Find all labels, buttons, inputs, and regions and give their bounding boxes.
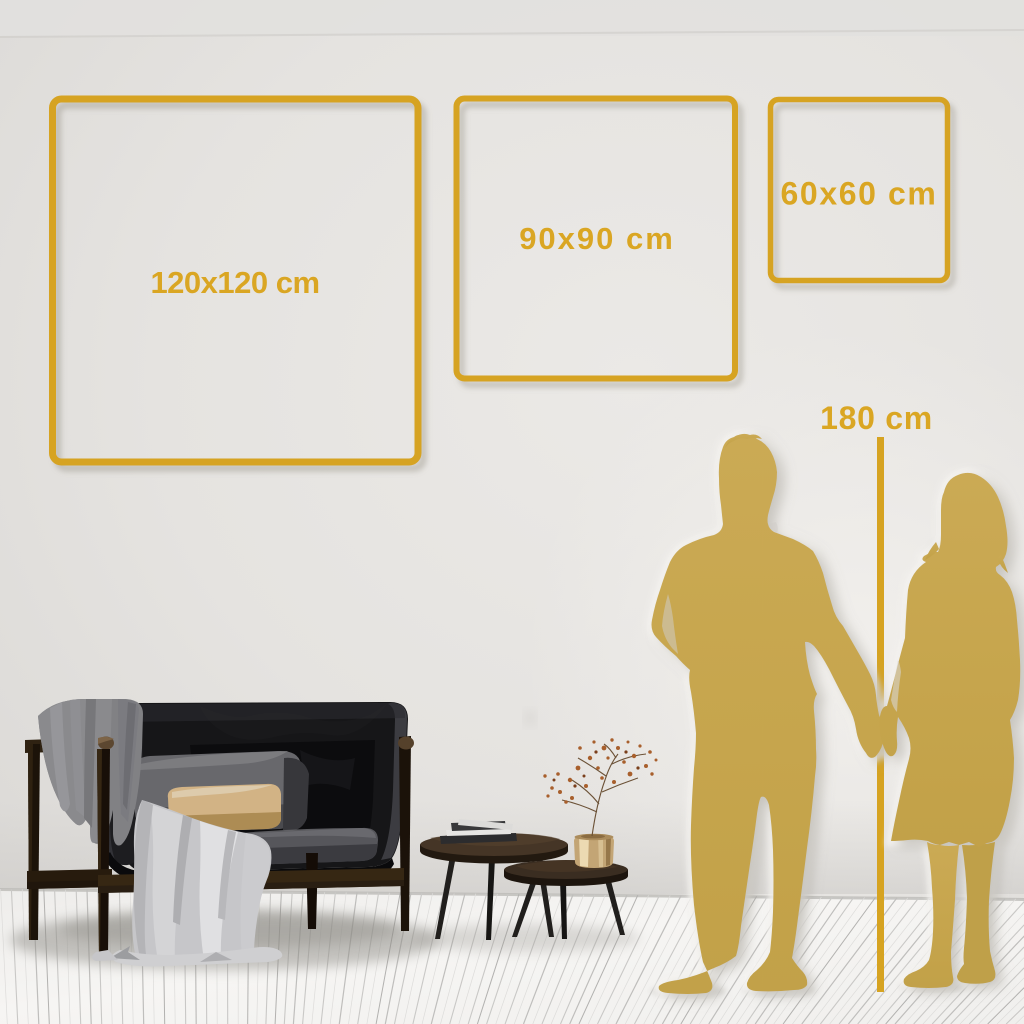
svg-text:90x90 cm: 90x90 cm	[519, 221, 675, 256]
svg-text:120x120 cm: 120x120 cm	[150, 265, 319, 300]
svg-text:180 cm: 180 cm	[820, 400, 933, 436]
svg-text:60x60 cm: 60x60 cm	[781, 176, 938, 212]
